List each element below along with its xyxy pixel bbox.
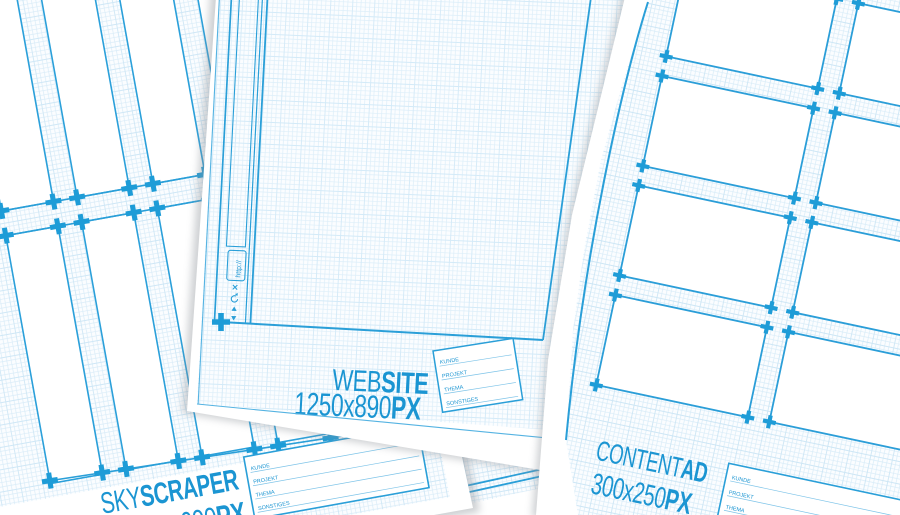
svg-text:1250x890PX: 1250x890PX bbox=[293, 385, 422, 426]
svg-text:http://: http:// bbox=[235, 260, 243, 278]
